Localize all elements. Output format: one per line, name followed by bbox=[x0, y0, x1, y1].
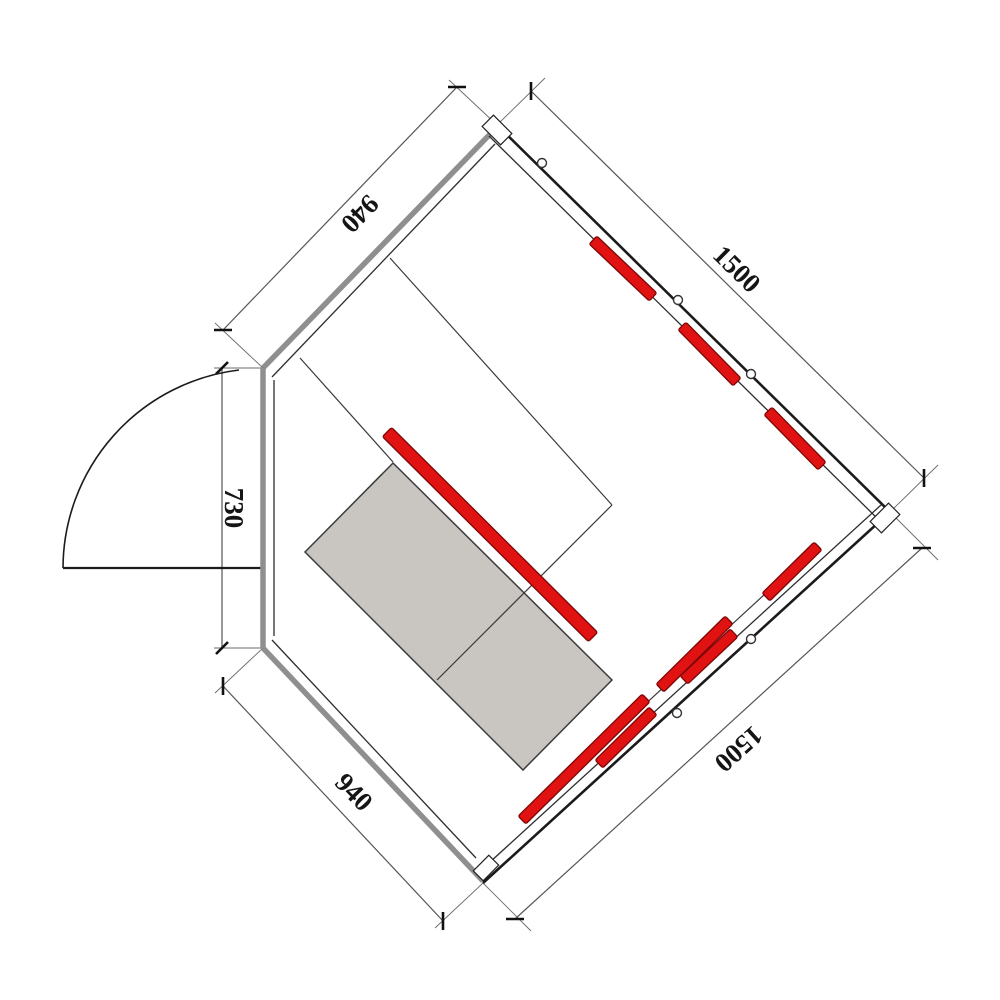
dim-label-top-left-940: 940 bbox=[335, 189, 385, 239]
extension-line bbox=[890, 465, 938, 512]
dim-line-1500-bottom-right bbox=[515, 548, 922, 919]
vent-hole bbox=[538, 159, 547, 168]
door-swing-arc bbox=[63, 370, 239, 568]
partition-corner-to-bench bbox=[300, 358, 393, 462]
vent-hole bbox=[673, 709, 682, 718]
vent-hole bbox=[747, 370, 756, 379]
wall-heater-top-1 bbox=[589, 236, 657, 301]
floor-plan-canvas: 94015007309401500 bbox=[0, 0, 1000, 1000]
dim-label-left-730: 730 bbox=[219, 488, 249, 529]
wall-heater-bottom-3 bbox=[656, 616, 733, 692]
dim-label-top-right-1500: 1500 bbox=[707, 239, 767, 298]
extension-line bbox=[890, 512, 938, 560]
vent-hole bbox=[747, 635, 756, 644]
dim-label-bottom-right-1500: 1500 bbox=[709, 720, 769, 778]
inner-face-top-left bbox=[272, 144, 495, 377]
sauna-floor-plan-drawing: 94015007309401500 bbox=[0, 0, 1000, 1000]
back-wall-top-right bbox=[497, 125, 890, 512]
wall-heater-top-2 bbox=[678, 322, 741, 386]
dim-label-bottom-left-940: 940 bbox=[329, 767, 379, 817]
extension-line bbox=[497, 78, 545, 125]
wall-corner-cap bbox=[870, 503, 900, 533]
front-glass-wall-top-left bbox=[263, 127, 497, 368]
extension-line bbox=[483, 883, 531, 931]
wall-heater-right-corner bbox=[762, 542, 822, 601]
vent-hole bbox=[674, 296, 683, 305]
dim-line-1500-top-right bbox=[531, 91, 924, 478]
